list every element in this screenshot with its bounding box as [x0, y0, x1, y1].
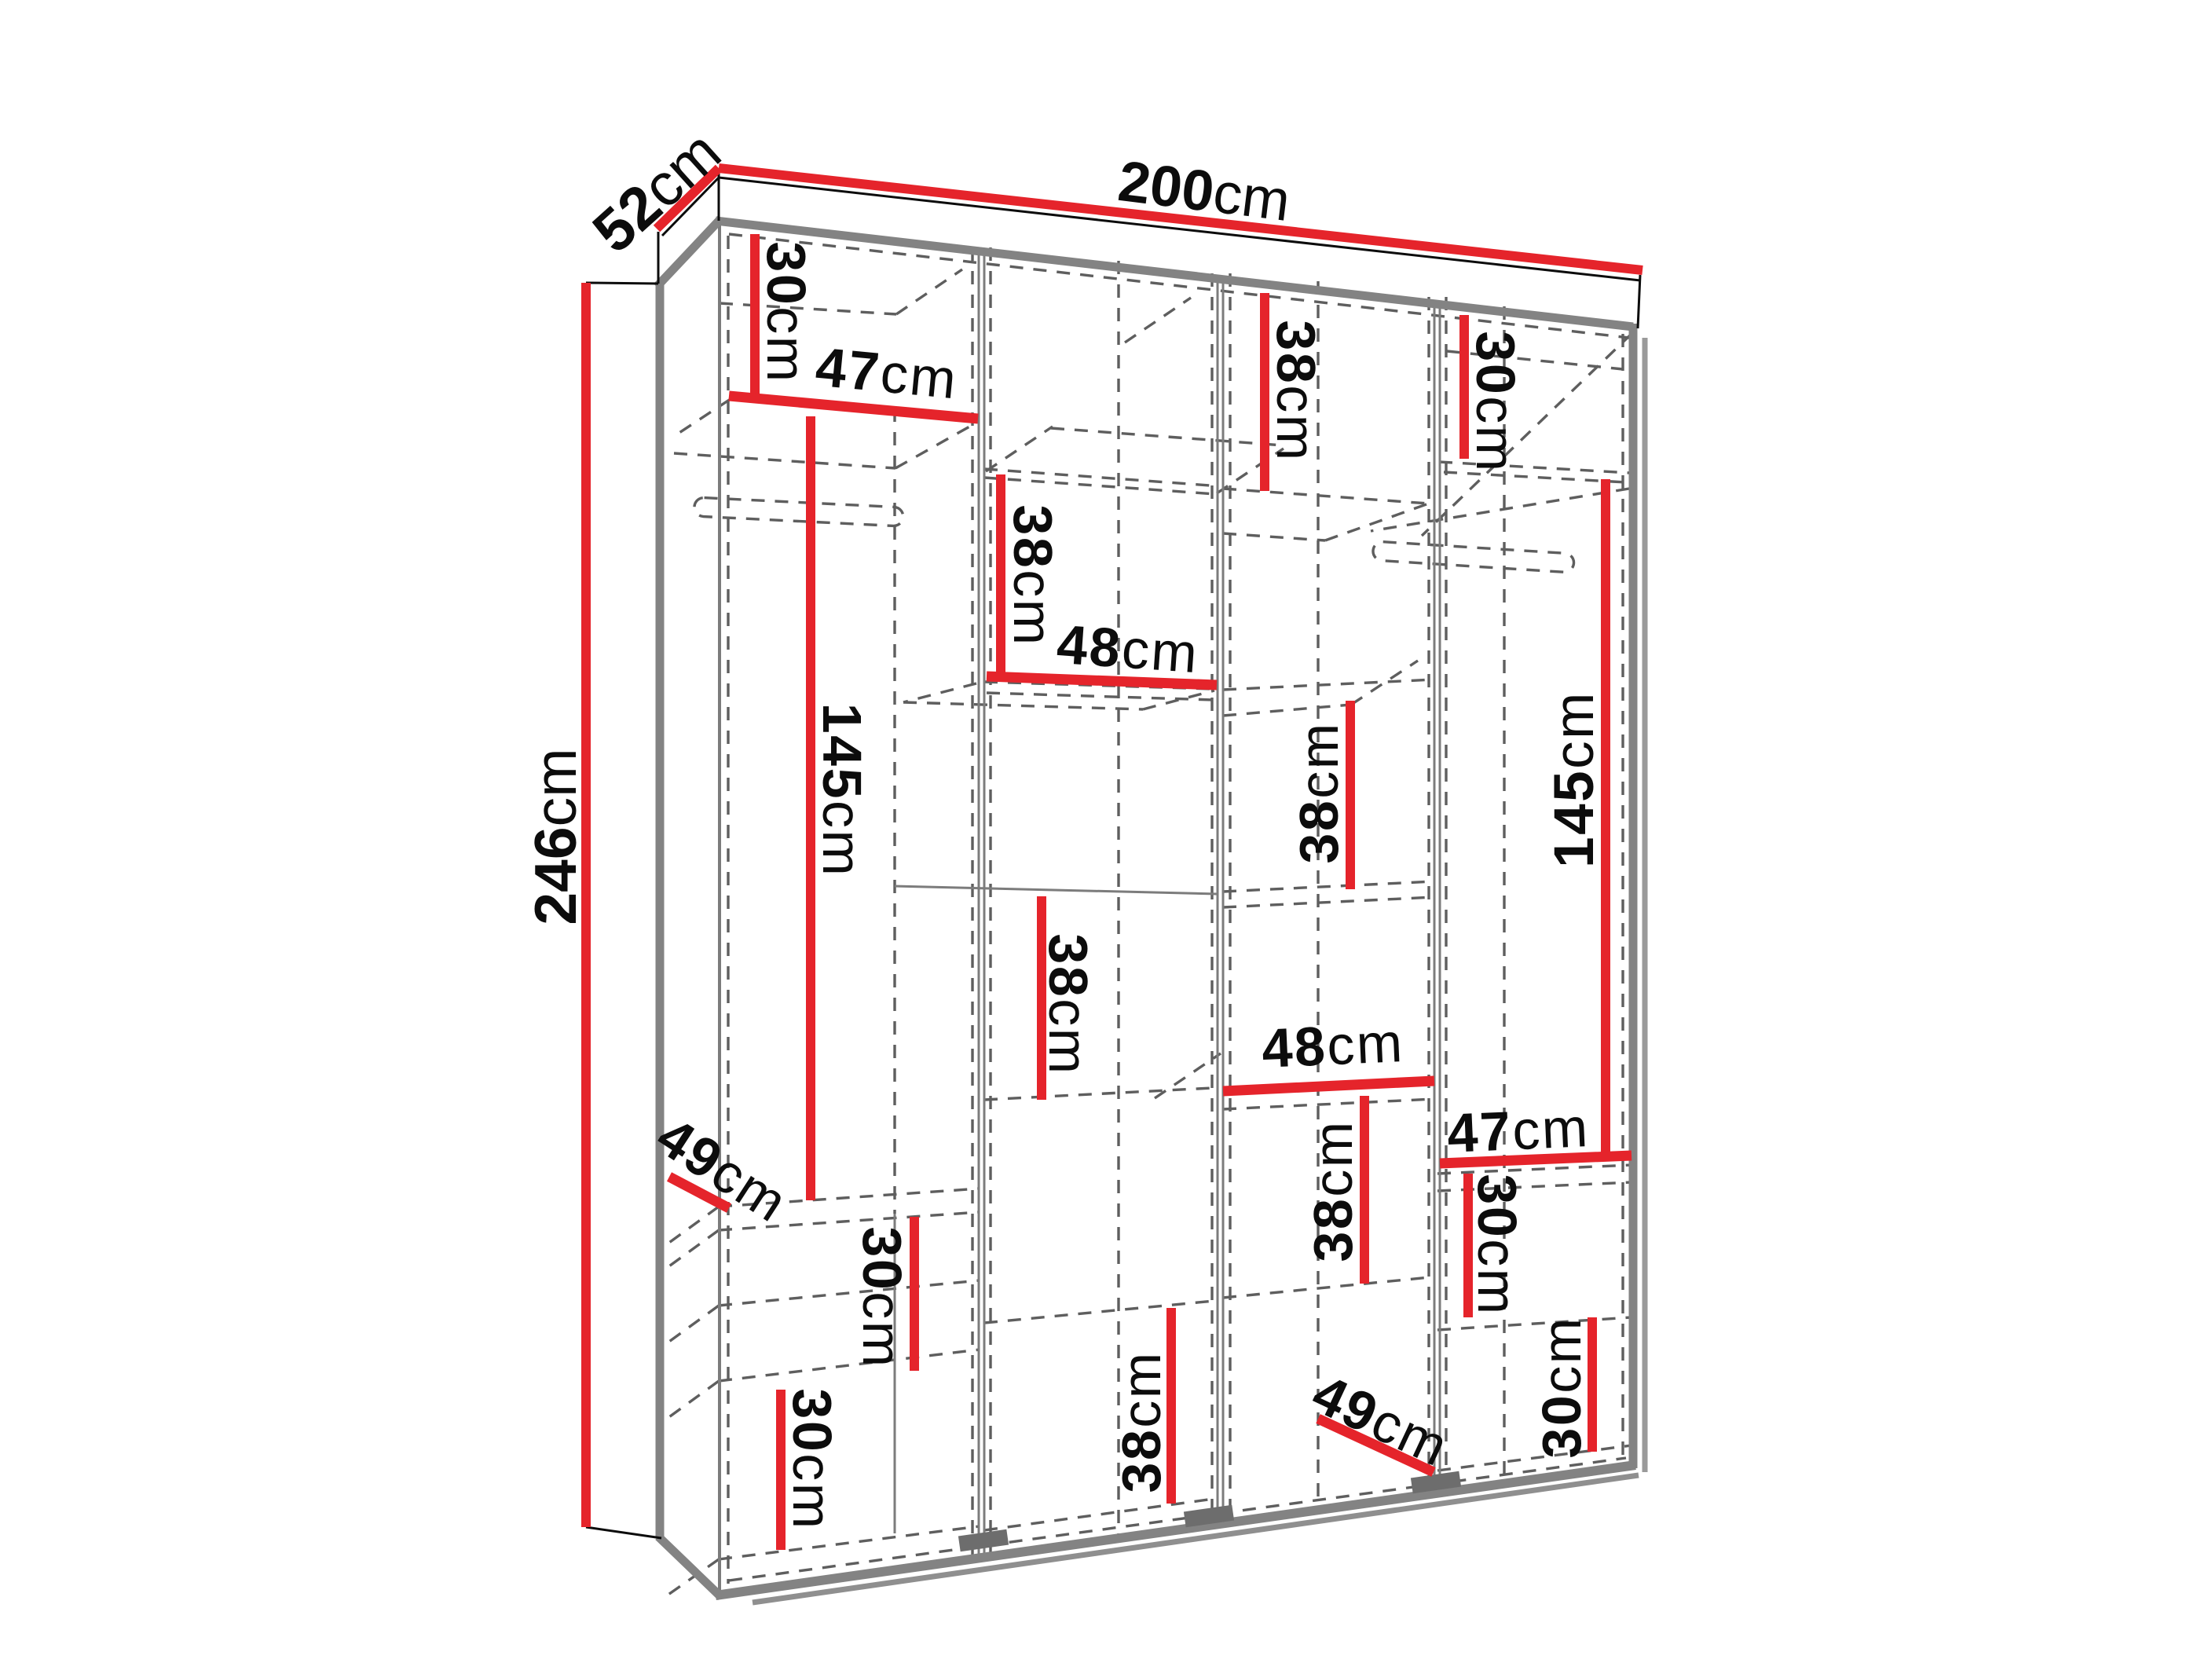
svg-text:30cm: 30cm	[782, 1388, 843, 1530]
svg-text:30cm: 30cm	[1531, 1316, 1592, 1458]
svg-text:47cm: 47cm	[1446, 1097, 1591, 1164]
svg-text:38cm: 38cm	[1111, 1350, 1172, 1493]
svg-text:30cm: 30cm	[1467, 1174, 1528, 1316]
svg-text:38cm: 38cm	[1302, 1119, 1364, 1262]
svg-text:145cm: 145cm	[811, 703, 873, 878]
svg-text:145cm: 145cm	[1544, 690, 1606, 868]
svg-text:38cm: 38cm	[1265, 320, 1327, 462]
svg-text:38cm: 38cm	[1038, 933, 1099, 1075]
svg-text:246cm: 246cm	[522, 748, 588, 925]
svg-text:30cm: 30cm	[1465, 331, 1526, 473]
svg-text:30cm: 30cm	[851, 1226, 913, 1368]
svg-text:38cm: 38cm	[1002, 504, 1064, 647]
svg-text:38cm: 38cm	[1288, 721, 1350, 863]
svg-text:48cm: 48cm	[1055, 614, 1201, 684]
svg-text:48cm: 48cm	[1261, 1012, 1405, 1079]
svg-text:30cm: 30cm	[756, 241, 817, 383]
